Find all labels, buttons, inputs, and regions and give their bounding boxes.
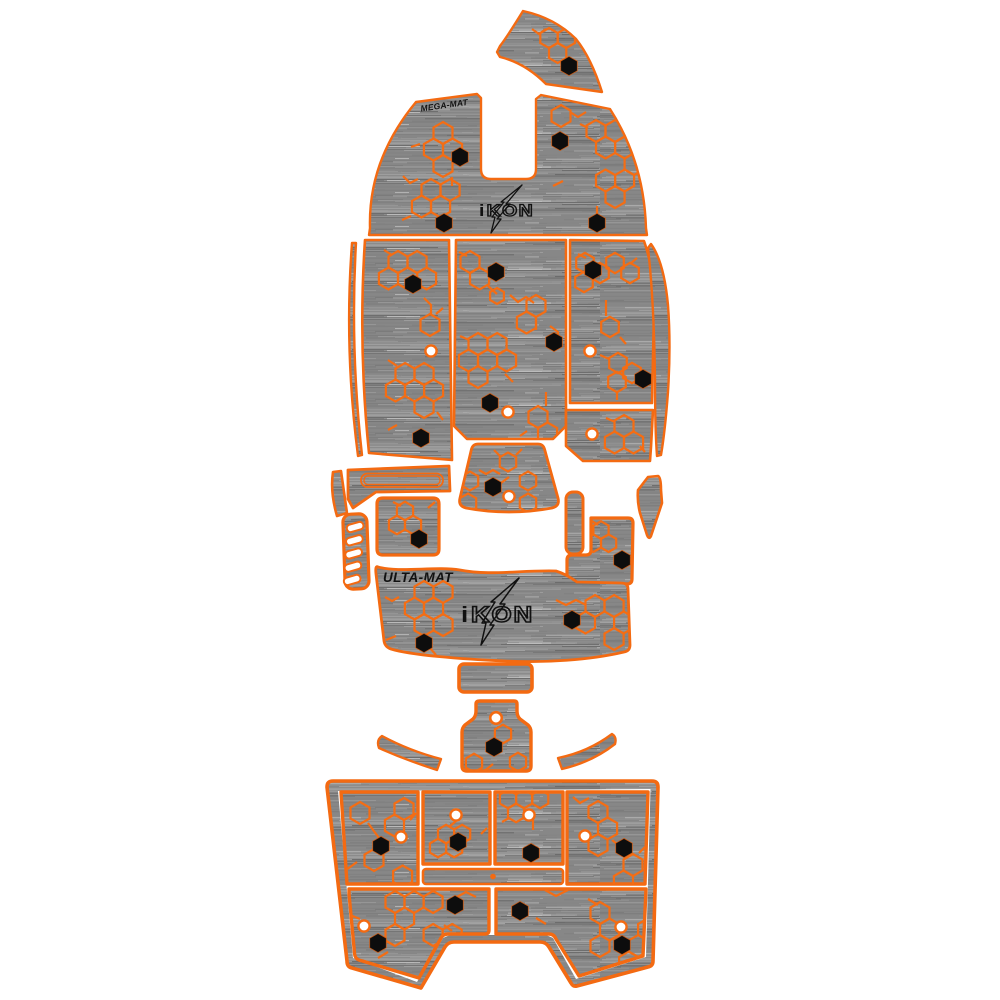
svg-text:ULTA-MAT: ULTA-MAT <box>383 570 454 585</box>
svg-text:i: i <box>479 201 484 219</box>
svg-text:i: i <box>461 603 468 628</box>
